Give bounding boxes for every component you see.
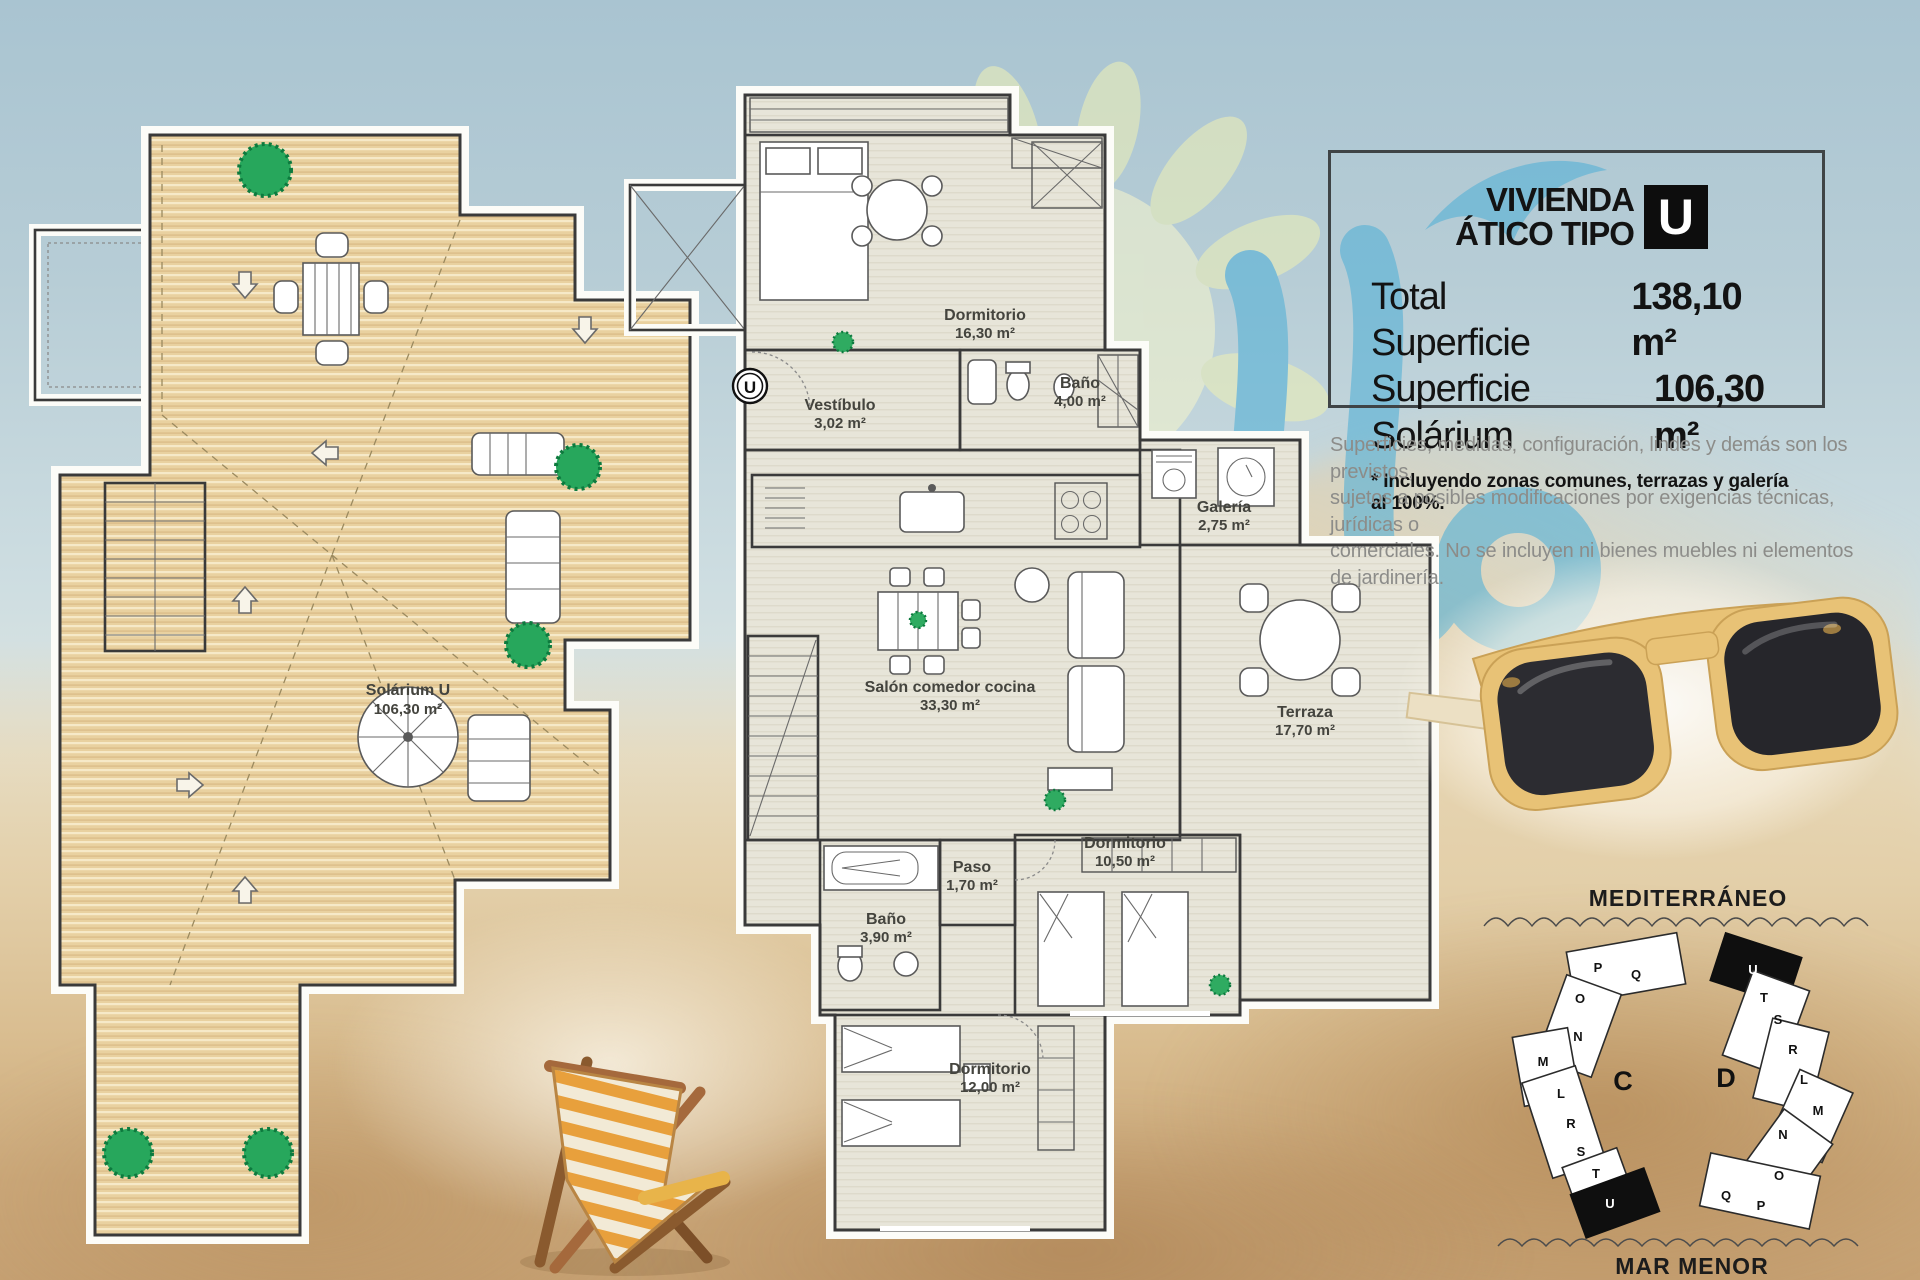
svg-text:N: N [1573, 1029, 1582, 1044]
plant-icon [244, 1129, 292, 1177]
room-label: Baño [1060, 375, 1100, 392]
room-area: 16,30 m² [955, 325, 1015, 342]
svg-text:P: P [1757, 1198, 1766, 1213]
cluster-d-label: D [1716, 1063, 1736, 1093]
total-surface-label: Total Superficie [1371, 274, 1609, 367]
room-area: 3,02 m² [814, 415, 866, 432]
svg-text:U: U [744, 378, 756, 397]
unit-type-marker: U [733, 369, 767, 403]
svg-text:T: T [1760, 990, 1768, 1005]
title-line1: VIVIENDA [1455, 183, 1634, 217]
room-label: Paso [953, 859, 991, 876]
svg-text:M: M [1813, 1103, 1824, 1118]
room-label: Dormitorio [1084, 835, 1166, 852]
plant-icon [506, 623, 550, 667]
plant-icon [556, 445, 600, 489]
svg-text:L: L [1800, 1072, 1808, 1087]
room-label: Salón comedor cocina [865, 679, 1036, 696]
room-area: 12,00 m² [960, 1079, 1020, 1096]
svg-text:L: L [1557, 1086, 1565, 1101]
sea-label-bottom: MAR MENOR [1615, 1253, 1768, 1279]
room-area: 33,30 m² [920, 697, 980, 714]
title-line2: ÁTICO TIPO [1455, 217, 1634, 251]
room-label: Baño [866, 911, 906, 928]
svg-text:S: S [1774, 1012, 1783, 1027]
room-area: 10,50 m² [1095, 853, 1155, 870]
room-label: Galería [1197, 499, 1251, 516]
disclaimer-line: Superficies, medidas, configuración, lin… [1330, 432, 1875, 485]
building-chain-c: P Q O N M L R S T U [1512, 933, 1685, 1238]
plant-icon [239, 144, 291, 196]
total-surface-value: 138,10 m² [1631, 274, 1792, 367]
plant-icon [104, 1129, 152, 1177]
room-label: Dormitorio [944, 307, 1026, 324]
svg-text:U: U [1748, 962, 1757, 977]
room-area: 4,00 m² [1054, 393, 1106, 410]
room-area: 3,90 m² [860, 929, 912, 946]
sunglasses-photo [1395, 535, 1920, 895]
room-area: 1,70 m² [946, 877, 998, 894]
plant-icon [833, 332, 853, 352]
svg-text:M: M [1538, 1054, 1549, 1069]
title-box: VIVIENDA ÁTICO TIPO U Total Superficie 1… [1328, 150, 1825, 408]
svg-text:U: U [1605, 1196, 1614, 1211]
svg-text:P: P [1594, 960, 1603, 975]
unit-type-badge: U [1644, 185, 1708, 249]
brochure-page: Solárium U 106,30 m² [0, 0, 1920, 1280]
plant-icon [1210, 975, 1230, 995]
svg-text:Q: Q [1631, 967, 1641, 982]
disclaimer-line: sujetos a posibles modificaciones por ex… [1330, 485, 1875, 538]
room-label: Vestíbulo [804, 397, 875, 414]
plant-icon [1045, 790, 1065, 810]
sea-label-top: MEDITERRÁNEO [1589, 884, 1788, 911]
svg-text:S: S [1577, 1144, 1586, 1159]
site-map: MEDITERRÁNEO P Q O N M L R S T U [1470, 860, 1920, 1280]
svg-text:N: N [1778, 1127, 1787, 1142]
room-area: 2,75 m² [1198, 517, 1250, 534]
room-area-solarium: 106,30 m² [374, 701, 442, 718]
svg-text:R: R [1566, 1116, 1576, 1131]
room-area: 17,70 m² [1275, 722, 1335, 739]
shoreline-top [1484, 918, 1868, 926]
room-label-solarium: Solárium U [366, 682, 450, 699]
svg-text:O: O [1774, 1168, 1784, 1183]
cluster-c-label: C [1613, 1066, 1633, 1096]
closet [630, 185, 745, 330]
svg-text:Q: Q [1721, 1188, 1731, 1203]
svg-text:O: O [1575, 991, 1585, 1006]
deck-chair-photo [495, 1030, 745, 1280]
room-label: Dormitorio [949, 1061, 1031, 1078]
room-label: Terraza [1277, 704, 1333, 721]
svg-text:R: R [1788, 1042, 1798, 1057]
shoreline-bottom [1498, 1239, 1858, 1246]
svg-text:T: T [1592, 1166, 1600, 1181]
